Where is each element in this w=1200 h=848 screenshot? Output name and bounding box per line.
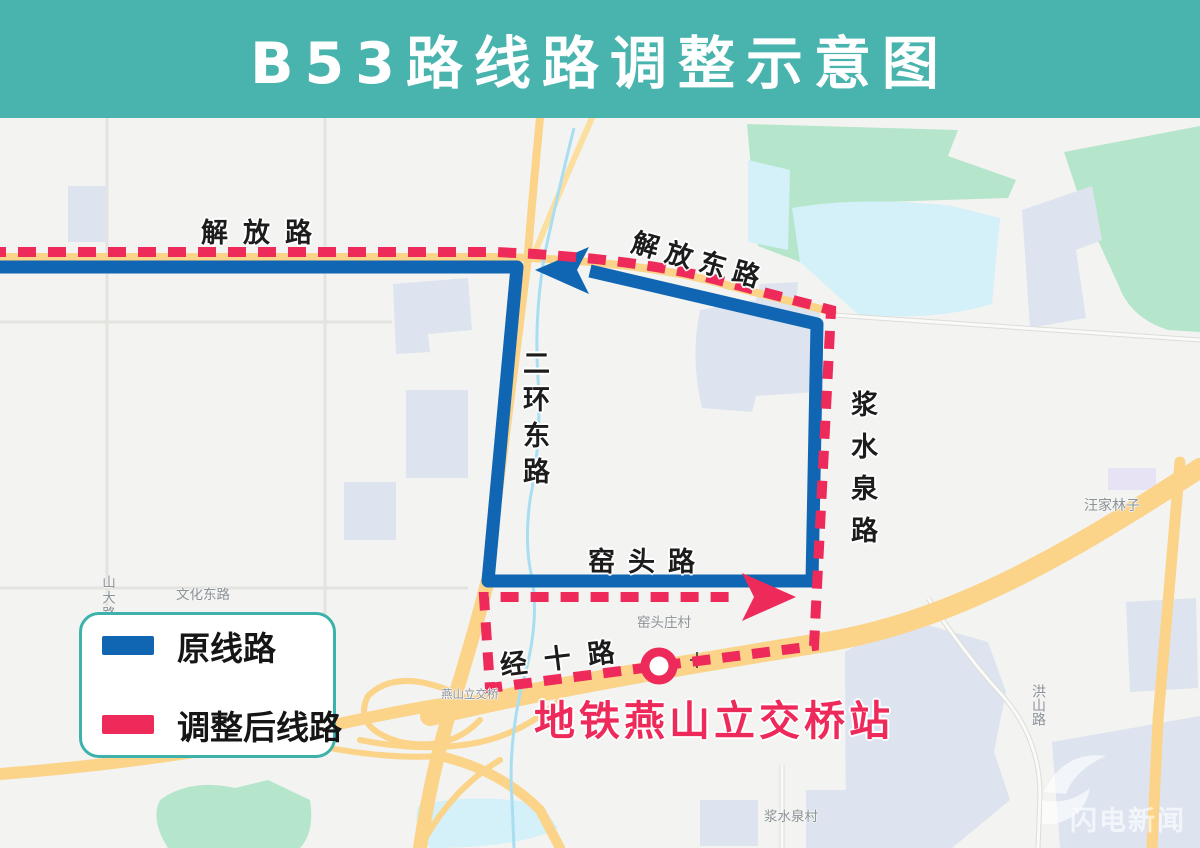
road-label-jiangshuiquan: 浆水泉路 [842,390,881,558]
area-label-yanshan: 燕山立交桥 [441,686,499,702]
legend-box: 原线路 调整后线路 [79,612,336,758]
area-label-wangjialinzi: 汪家林子 [1084,495,1140,515]
page-title: B53路线路调整示意图 [250,18,950,100]
area-label-jiangshuiquancun: 浆水泉村 [764,805,818,825]
original-route-swatch [102,636,154,655]
route-map-canvas: 解放路 解放东路 二环东路 浆水泉路 窑头路 经十路 山大路 文化东路 汪家林子… [0,0,1200,848]
road-label-jiefang: 解放路 [201,211,327,250]
legend-label-original: 原线路 [177,622,276,670]
legend-item-adjusted: 调整后线路 [102,701,333,749]
area-label-wenhuadong: 文化东路 [176,583,230,603]
watermark-text: 闪电新闻 [1070,799,1186,838]
area-label-hongshan: 洪山路 [1028,684,1048,726]
metro-station-marker [645,652,673,680]
adjusted-route-swatch [102,715,154,734]
header-banner: B53路线路调整示意图 [0,0,1200,118]
building-lavender [1108,468,1156,490]
legend-item-original: 原线路 [102,622,333,670]
legend-label-adjusted: 调整后线路 [177,701,342,749]
metro-station-label: 地铁燕山立交桥站 [534,687,894,747]
road-label-erhuandong: 二环东路 [514,349,553,493]
area-label-yaotouzhuang: 窑头庄村 [637,611,691,631]
road-label-yaotou: 窑头路 [588,540,708,579]
